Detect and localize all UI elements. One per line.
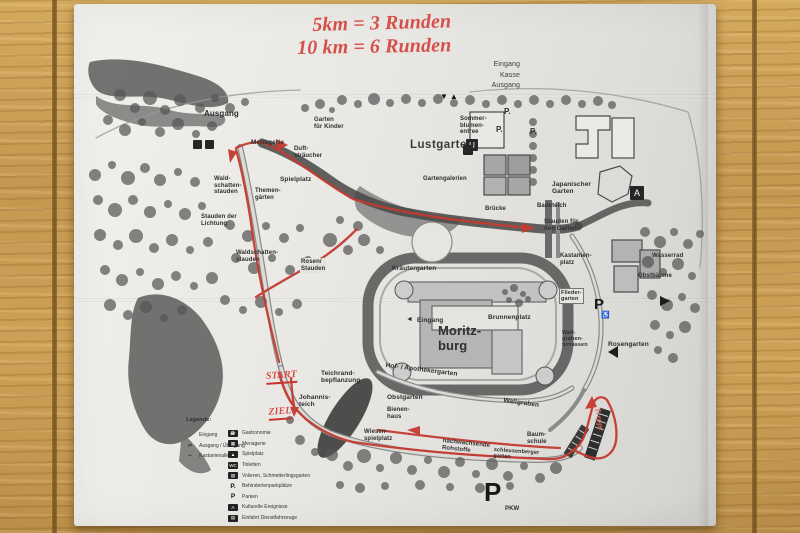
stairs-annotation: Treppe: [592, 407, 605, 432]
wheelchair-icon: ♿: [601, 312, 610, 320]
gate-triangles: ▼▲: [440, 93, 460, 102]
label-teichrand-bepflanzung: Teichrand- bepflanzung: [321, 370, 360, 385]
route-note-line1: 5km = 3 Runden: [312, 10, 451, 36]
label-parking-dot-2: P.: [496, 126, 503, 135]
label-wallgraben: Wallgraben: [503, 397, 539, 409]
label-kastanienplatz: Kastanien- platz: [560, 253, 592, 266]
label-fliedergarten: Flieder- garten: [559, 288, 584, 304]
label-hof-apothekergarten: Hof- / Apothekergarten: [385, 362, 458, 378]
legend-label: Toiletten: [242, 462, 261, 468]
menagerie-icon: ▦: [228, 440, 238, 447]
legend-item: ▲Spielplatz: [228, 449, 310, 460]
map-icon-box: [205, 140, 214, 149]
photo-of-park-map: 5km = 3 Runden 10 km = 6 Runden Eingang …: [0, 0, 800, 533]
legend-item: ☕Gastronomie: [228, 428, 310, 439]
label-kraeutergarten: Kräutergarten: [392, 265, 436, 272]
legend-item: WCToiletten: [228, 460, 310, 471]
label-brunnenplatz: Brunnenplatz: [488, 314, 531, 321]
spielplatz-icon: ▲: [228, 451, 238, 458]
label-waldschattenstauden: Waldschatten- stauden: [236, 250, 278, 263]
legend-label: Spielplatz: [242, 451, 264, 457]
label-rosen-stauden: Rosen/ Stauden: [300, 258, 326, 273]
label-bienenhaus: Bienen- haus: [387, 407, 410, 420]
label-duftstraeucher: Duft- sträucher: [294, 146, 322, 159]
label-sommerblumen-entree: Sommer- blumen- entree: [460, 116, 487, 136]
map-labels: 5km = 3 Runden 10 km = 6 Runden Eingang …: [0, 0, 800, 533]
ziel-text: ZIEL: [268, 405, 292, 420]
dienstfahrzeuge-icon: ▤: [228, 515, 238, 522]
legend-item: PParken: [228, 492, 310, 503]
label-wasserrad: Wasserrad: [652, 253, 683, 260]
route-note-line2: 10 km = 6 Runden: [297, 34, 452, 59]
label-spielplatz: Spielplatz: [280, 176, 311, 183]
legend-label: Gastronomie: [242, 430, 271, 436]
legend-label: Einfahrt Dienstfahrzeuge: [242, 515, 297, 521]
label-entrance-block: Eingang Kasse Ausgang: [452, 60, 520, 92]
legend-symbol: →: [184, 432, 196, 438]
start-text: START: [266, 369, 298, 385]
label-japanischer-garten: Japanischer Garten: [552, 181, 591, 196]
label-nachwachsende-rohstoffe: nachwachsende Rohstoffe: [442, 438, 491, 456]
legend-label: Eingang: [199, 432, 217, 438]
label-wallgraben-terrassen: Wall- graben- terrassen: [562, 330, 588, 348]
label-obstbaeume: Obstbäume: [638, 273, 672, 280]
volieren-icon: ▧: [228, 472, 238, 479]
legend-right-column: ☕Gastronomie ▦Menagerie ▲Spielplatz WCTo…: [228, 428, 310, 523]
label-wiesenspielplatz: Wiesen- spielplatz: [364, 429, 392, 442]
legend-label: Menagerie: [242, 441, 266, 447]
legend-item: AKulturelle Ereignisse: [228, 502, 310, 513]
label-moritzburg: Moritz- burg: [438, 324, 481, 353]
label-ausgang: Ausgang: [204, 110, 239, 119]
gastronomie-icon: ☕: [228, 430, 238, 437]
accessible-parking-icon: P.: [228, 483, 238, 490]
label-wald-schatten-stauden: Wald- schatten- stauden: [214, 176, 242, 196]
label-themengaerten: Themen- gärten: [255, 188, 281, 201]
label-johannisteich: Johannis- teich: [299, 394, 331, 409]
kultur-icon: A: [228, 504, 238, 511]
label-eingang-arrow: ◄: [406, 316, 413, 324]
label-garten-fuer-kinder: Garten für Kinder: [314, 117, 344, 130]
label-parking-dot-3: P.: [530, 128, 537, 137]
legend-symbol: ━: [184, 453, 196, 459]
legend-item: ▦Menagerie: [228, 439, 310, 450]
legend-label: Parken: [242, 494, 258, 500]
big-parking-symbol: P: [484, 478, 501, 507]
label-schleusenberger-garten: schleusenberger garten: [493, 447, 539, 462]
label-stauden-fuer-den-garten: Stauden für den Garten: [544, 219, 578, 232]
label-baumschule: Baum- schule: [527, 432, 547, 445]
legend-label: Behindertenparkplätze: [242, 483, 292, 489]
label-rosengarten: Rosengarten: [608, 341, 649, 348]
parking-icon: P: [228, 493, 238, 500]
legend-title: Legende:: [186, 417, 211, 423]
label-badeteich: Badeteich: [537, 203, 567, 210]
legend-item: ▤Einfahrt Dienstfahrzeuge: [228, 513, 310, 524]
label-menagerie: Menagerie: [251, 139, 284, 146]
legend-symbol: ⇄: [184, 443, 196, 449]
legend-label: Kulturelle Ereignisse: [242, 504, 288, 510]
legend-label: Kastanienallee: [199, 453, 232, 459]
legend-item: P.Behindertenparkplätze: [228, 481, 310, 492]
label-parking-dot-1: P.: [504, 108, 511, 117]
toiletten-icon: WC: [228, 462, 238, 469]
a-box-icon: A: [630, 186, 644, 200]
label-bruecke: Brücke: [485, 206, 506, 213]
label-gartengalerien: Gartengalerien: [423, 176, 467, 183]
map-icon-box: [463, 145, 473, 155]
legend-label: Volieren, Schmetterlingsgarten: [242, 473, 310, 479]
label-obstgarten: Obstgarten: [387, 394, 423, 401]
map-icon-box: [193, 140, 202, 149]
pkw-label: PKW: [505, 506, 519, 513]
legend-item: ▧Volieren, Schmetterlingsgarten: [228, 470, 310, 481]
label-stauden-der-lichtung: Stauden der Lichtung: [201, 214, 237, 227]
